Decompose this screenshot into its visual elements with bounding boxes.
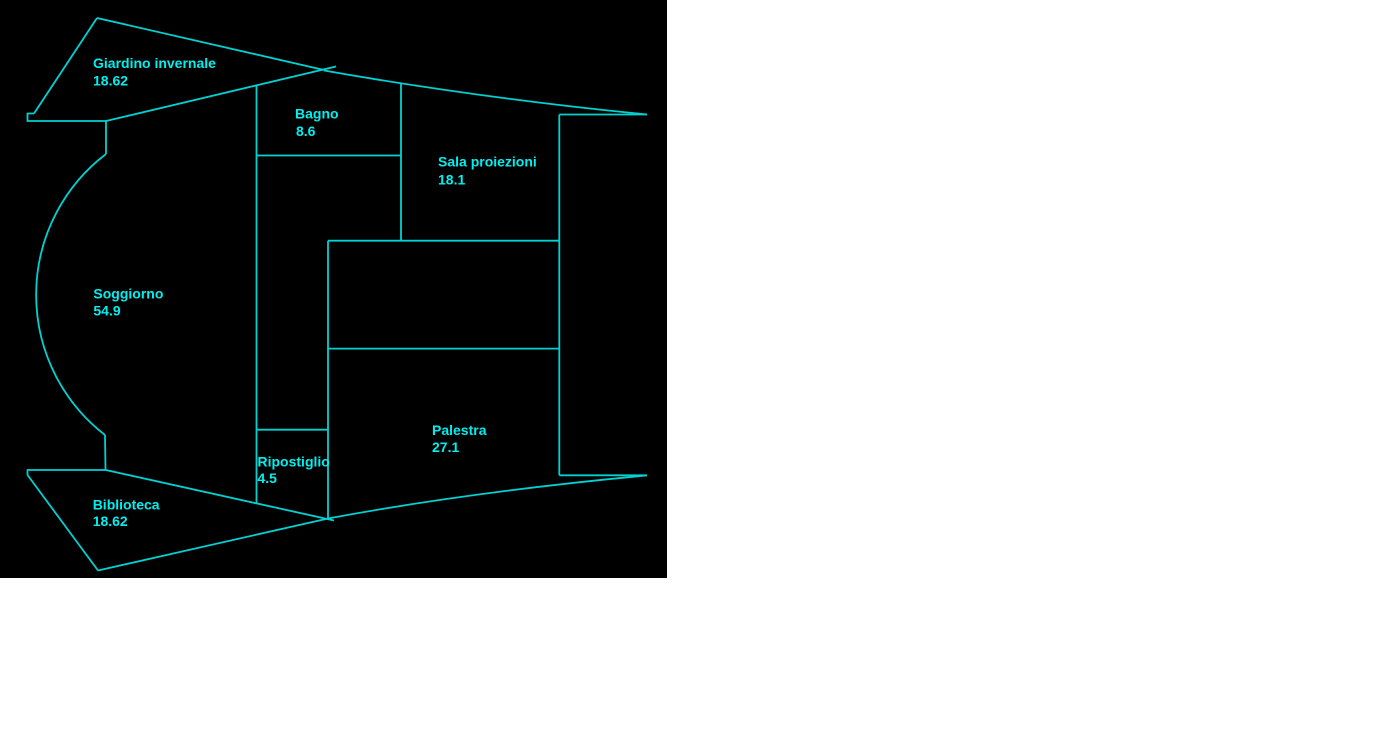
svg-text:18.1: 18.1 xyxy=(438,172,465,188)
svg-text:Biblioteca: Biblioteca xyxy=(93,496,160,512)
svg-text:8.6: 8.6 xyxy=(296,123,316,139)
svg-text:Palestra: Palestra xyxy=(432,422,487,438)
svg-text:18.62: 18.62 xyxy=(93,513,128,529)
svg-text:27.1: 27.1 xyxy=(432,439,459,455)
svg-text:18.62: 18.62 xyxy=(93,73,128,89)
svg-text:Ripostiglio: Ripostiglio xyxy=(258,454,330,470)
svg-text:4.5: 4.5 xyxy=(258,470,278,486)
svg-text:Giardino invernale: Giardino invernale xyxy=(93,55,216,71)
svg-text:Sala proiezioni: Sala proiezioni xyxy=(438,154,537,170)
svg-text:54.9: 54.9 xyxy=(93,302,120,318)
svg-text:Soggiorno: Soggiorno xyxy=(93,285,163,301)
svg-text:Bagno: Bagno xyxy=(295,106,339,122)
